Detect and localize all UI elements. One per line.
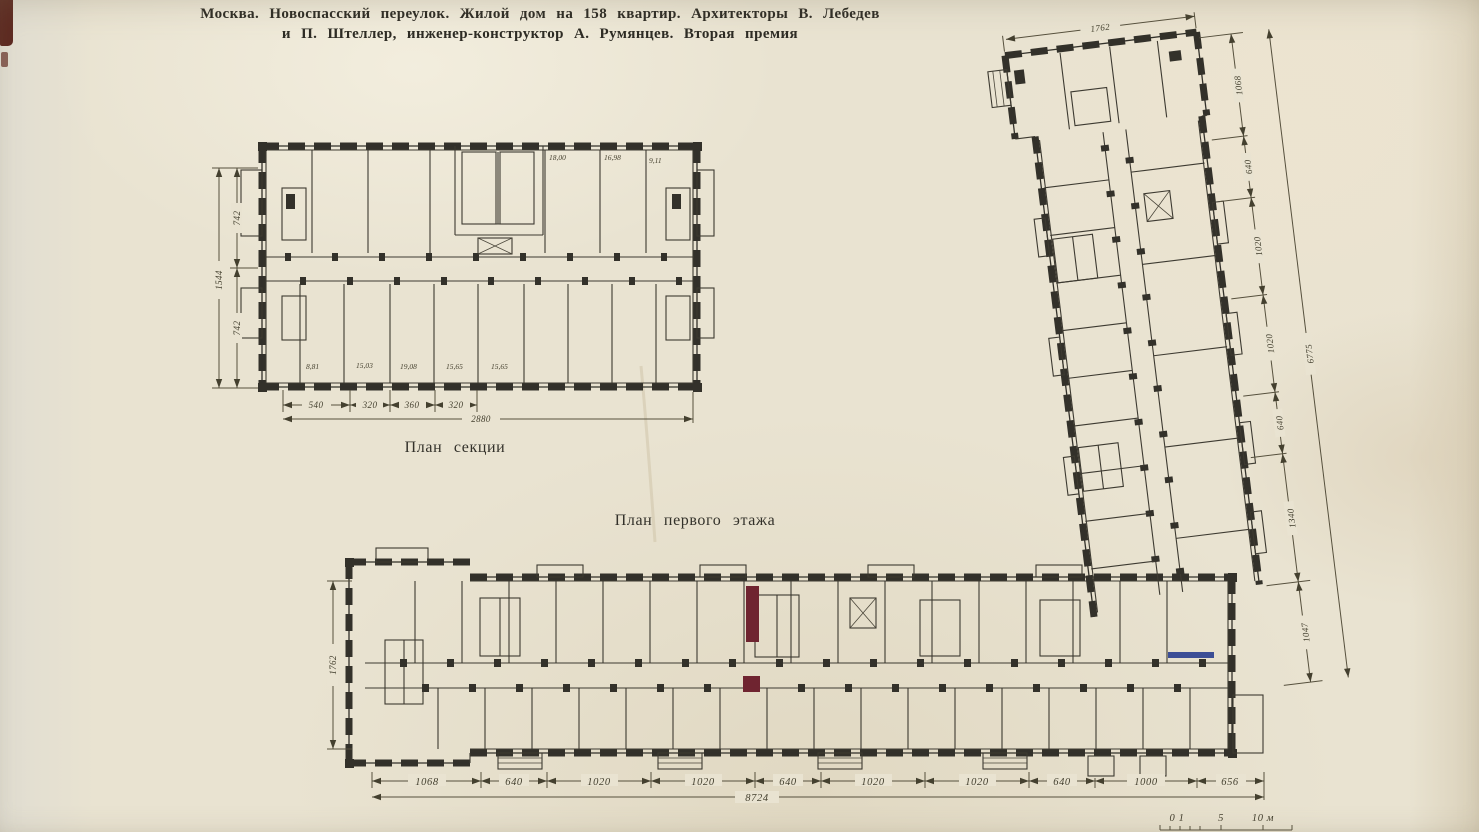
dim-label: 1000 <box>1134 777 1158 788</box>
section-plan-drawing: 18,00 16,98 9,11 8,81 15,03 19,08 15,65 … <box>241 142 714 392</box>
room-area-label: 18,00 <box>549 153 566 162</box>
paper-corner-stain <box>0 0 13 46</box>
dim-label: 1020 <box>587 777 611 788</box>
room-area-label: 8,81 <box>306 362 319 371</box>
ground-floor-drawing <box>345 548 1263 776</box>
stairwells <box>480 595 1080 657</box>
blue-wall-highlight <box>1168 652 1214 658</box>
dim-label: 540 <box>309 400 324 410</box>
red-wall-highlight <box>746 586 759 642</box>
dim-label: 640 <box>779 777 797 788</box>
dim-label: 640 <box>1274 415 1286 431</box>
dim-total-label: 8724 <box>745 793 769 804</box>
dim-label: 1047 <box>1299 622 1311 643</box>
dim-label: 1762 <box>1090 22 1111 34</box>
title-line-2: и П. Штеллер, инженер-конструктор А. Рум… <box>95 24 985 44</box>
scanned-page: 18,00 16,98 9,11 8,81 15,03 19,08 15,65 … <box>0 0 1479 832</box>
ground-bottom-dimensions: 1068 640 1020 1020 640 1020 1020 640 100… <box>372 772 1264 804</box>
title-line-1: Москва. Новоспасский переулок. Жилой дом… <box>95 4 985 24</box>
dim-total-label: 1544 <box>214 270 224 290</box>
section-plan-caption: План секции <box>340 439 570 457</box>
wing-dimension-chain: 1068 640 1020 1020 640 1340 1047 6775 <box>1199 29 1354 686</box>
red-wall-highlight <box>743 676 760 692</box>
dim-label: 1762 <box>328 655 338 675</box>
room-area-label: 15,65 <box>491 362 508 371</box>
dim-label: 1020 <box>965 777 989 788</box>
dim-label: 742 <box>232 321 242 336</box>
dim-label: 320 <box>362 400 378 410</box>
room-area-label: 19,08 <box>400 362 417 371</box>
room-area-label: 9,11 <box>649 156 662 165</box>
room-area-label: 15,03 <box>356 361 373 370</box>
ground-floor-caption: План первого этажа <box>585 512 805 530</box>
wing-drawing: 1762 1068 640 1020 1020 640 <box>983 1 1354 712</box>
scale-label: 5 <box>1218 813 1224 824</box>
dim-label: 742 <box>232 211 242 226</box>
dim-label: 1020 <box>691 777 715 788</box>
room-area-label: 15,65 <box>446 362 463 371</box>
floor-plans-drawing: 18,00 16,98 9,11 8,81 15,03 19,08 15,65 … <box>0 0 1479 832</box>
scale-label: 0 1 <box>1170 813 1185 824</box>
dim-label: 1068 <box>415 777 439 788</box>
room-area-label: 16,98 <box>604 153 621 162</box>
dim-label: 640 <box>505 777 523 788</box>
dim-label: 640 <box>1053 777 1071 788</box>
dim-total-label: 6775 <box>1303 343 1315 364</box>
section-staircase <box>455 146 543 254</box>
dim-label: 1020 <box>861 777 885 788</box>
section-bath-units <box>282 188 690 340</box>
dim-label: 640 <box>1242 159 1254 175</box>
scale-bar: 0 1 5 10 м <box>1160 813 1292 830</box>
dim-label: 1020 <box>1252 236 1264 257</box>
dim-label: 320 <box>448 400 464 410</box>
dim-label: 1020 <box>1264 333 1276 354</box>
scale-label: 10 м <box>1252 813 1274 824</box>
paper-corner-stain-small <box>1 52 8 67</box>
dim-label: 656 <box>1221 777 1239 788</box>
dim-label: 360 <box>404 400 420 410</box>
dim-label: 1068 <box>1232 75 1244 96</box>
page-title: Москва. Новоспасский переулок. Жилой дом… <box>95 4 985 44</box>
dim-label: 1340 <box>1285 508 1297 529</box>
entrance-porches <box>498 695 1263 776</box>
dim-total-label: 2880 <box>471 414 491 424</box>
